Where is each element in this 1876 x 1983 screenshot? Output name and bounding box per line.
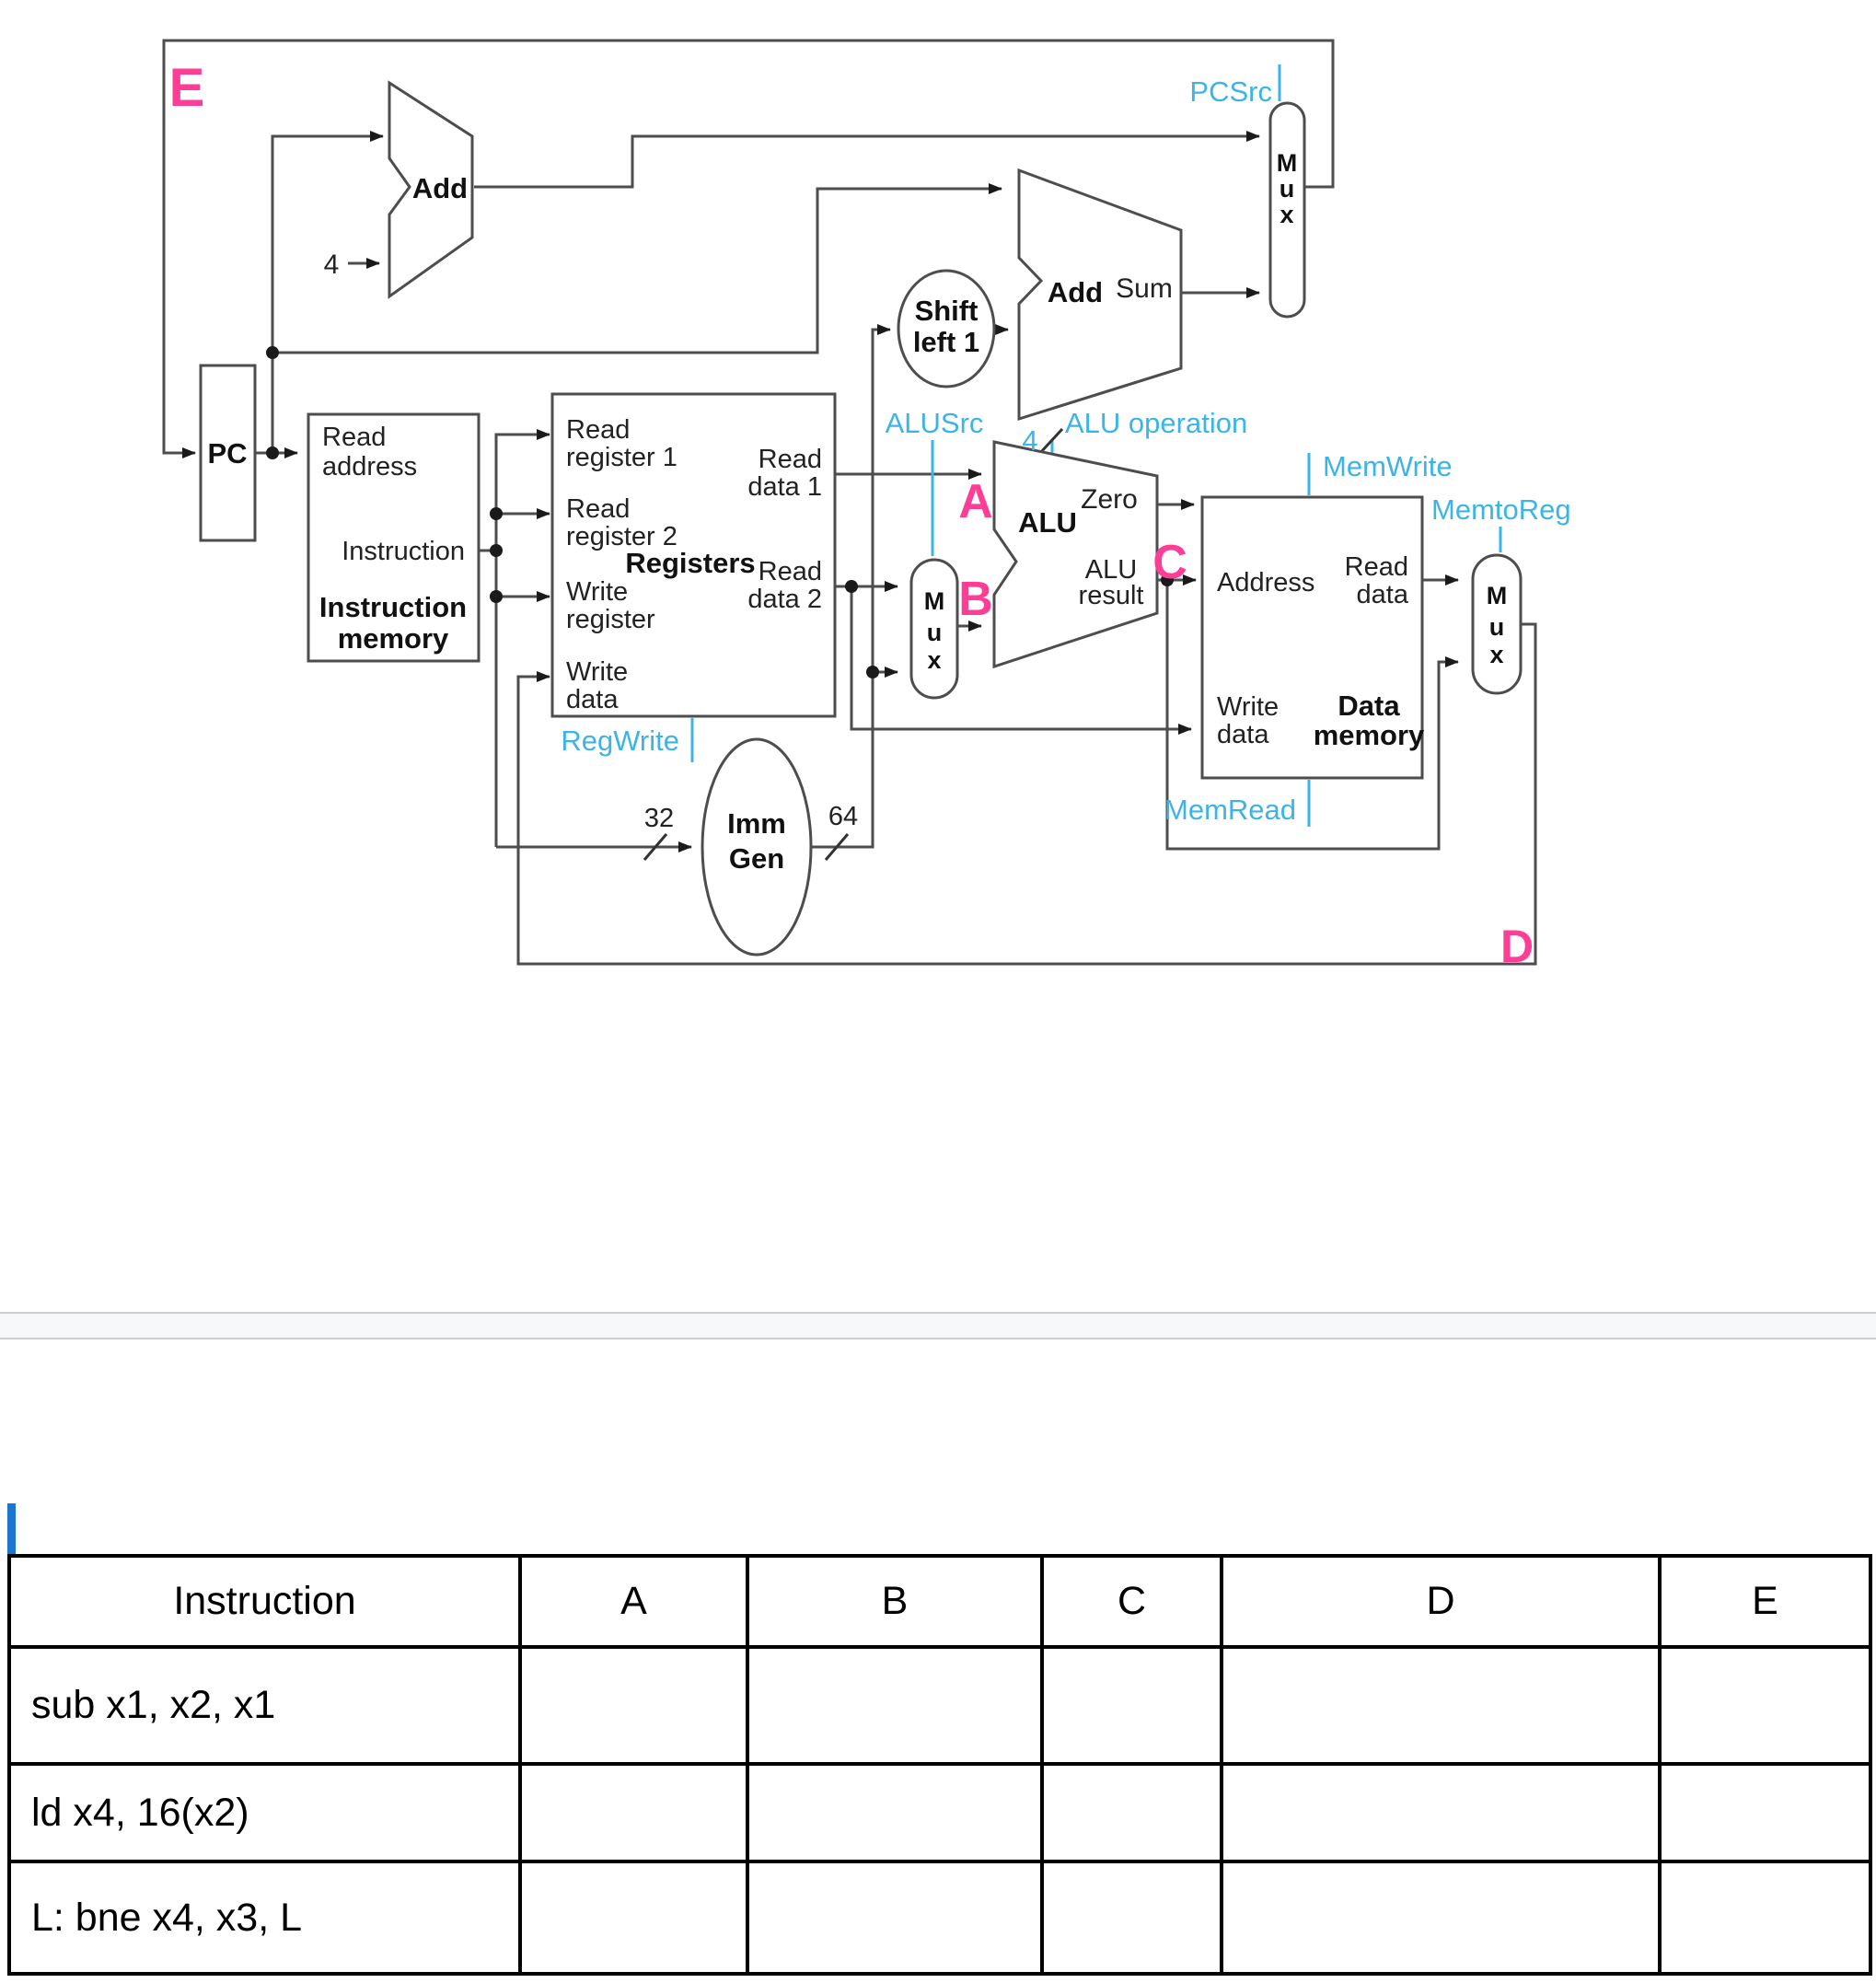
datapath-diagram: PC 4 Read address Instruction Instructio…	[0, 0, 1876, 1298]
regfile-readreg1-1: Read	[566, 415, 630, 445]
mux-pcsrc-x: x	[1280, 201, 1293, 228]
col-header-a: A	[520, 1556, 747, 1647]
mux-pcsrc-m: M	[1277, 149, 1298, 177]
junction-instr-rr2	[490, 507, 503, 520]
junction-pc-branch	[266, 346, 279, 359]
page: PC 4 Read address Instruction Instructio…	[0, 0, 1876, 1983]
junction-immgen-out	[866, 666, 879, 678]
table-header-row: Instruction A B C D E	[9, 1556, 1870, 1647]
imem-instruction-port: Instruction	[342, 537, 465, 566]
regfile-writereg-2: register	[566, 605, 655, 634]
imem-title-2: memory	[338, 622, 449, 655]
shift-label-1: Shift	[915, 295, 979, 327]
regfile-readdata2-1: Read	[759, 557, 822, 586]
point-label-e: E	[169, 58, 205, 118]
alu-block	[994, 442, 1157, 667]
answer-cell-c[interactable]	[1042, 1861, 1222, 1974]
answer-cell-b[interactable]	[747, 1647, 1042, 1764]
immgen-label-2: Gen	[729, 842, 784, 875]
wire-instr-to-readreg1	[496, 435, 550, 847]
table-row: L: bne x4, x3, L	[9, 1861, 1870, 1974]
dmem-address: Address	[1217, 568, 1314, 597]
answer-cell-b[interactable]	[747, 1764, 1042, 1861]
answer-cell-d[interactable]	[1222, 1647, 1660, 1764]
dmem-title-2: memory	[1314, 719, 1425, 751]
control-memtoreg-label: MemtoReg	[1431, 493, 1571, 526]
col-header-e: E	[1660, 1556, 1870, 1647]
dmem-readdata-2: data	[1357, 580, 1409, 609]
answer-table: Instruction A B C D E sub x1, x2, x1 ld …	[7, 1554, 1872, 1976]
point-label-c: C	[1152, 536, 1187, 589]
mux-memtoreg-x: x	[1489, 641, 1503, 668]
answer-cell-b[interactable]	[747, 1861, 1042, 1974]
col-header-c: C	[1042, 1556, 1222, 1647]
wire-pc-to-add2	[272, 189, 1002, 353]
regfile-title: Registers	[625, 547, 755, 579]
regfile-readdata2-2: data 2	[747, 585, 822, 614]
regfile-writereg-1: Write	[566, 577, 628, 607]
mux-alusrc-x: x	[927, 646, 941, 674]
adder-branch-label: Add	[1048, 276, 1103, 308]
regfile-writedata-1: Write	[566, 657, 628, 687]
wire-pc-to-add1	[272, 136, 383, 453]
immgen-label-1: Imm	[727, 807, 786, 840]
alu-result-2: result	[1079, 581, 1144, 610]
instruction-cell: sub x1, x2, x1	[9, 1647, 520, 1764]
control-memwrite-label: MemWrite	[1323, 450, 1453, 482]
pc-increment-4: 4	[324, 249, 340, 280]
col-header-instruction: Instruction	[9, 1556, 520, 1647]
immgen-width-32: 32	[644, 804, 674, 833]
mux-alusrc-m: M	[924, 587, 945, 615]
col-header-b: B	[747, 1556, 1042, 1647]
junction-readdata2	[845, 580, 858, 593]
imem-read-address-2: address	[322, 452, 417, 481]
text-cursor	[7, 1503, 16, 1554]
answer-cell-a[interactable]	[520, 1647, 747, 1764]
control-regwrite-label: RegWrite	[561, 725, 679, 757]
mux-memtoreg-m: M	[1487, 582, 1508, 609]
table-row: sub x1, x2, x1	[9, 1647, 1870, 1764]
imem-read-address-1: Read	[322, 423, 386, 452]
regfile-readreg2-1: Read	[566, 494, 630, 524]
mux-alusrc-u: u	[927, 619, 943, 646]
table-row: ld x4, 16(x2)	[9, 1764, 1870, 1861]
alu-zero: Zero	[1081, 484, 1138, 515]
point-label-a: A	[958, 475, 993, 528]
mux-memtoreg-u: u	[1489, 613, 1505, 641]
dmem-writedata-2: data	[1217, 720, 1269, 749]
pc-label: PC	[207, 437, 247, 470]
answer-cell-c[interactable]	[1042, 1647, 1222, 1764]
answer-cell-e[interactable]	[1660, 1861, 1870, 1974]
junction-instr-wr	[490, 590, 503, 603]
section-divider	[0, 1312, 1876, 1339]
instruction-cell: L: bne x4, x3, L	[9, 1861, 520, 1974]
adder-branch-sum: Sum	[1116, 273, 1173, 304]
answer-cell-c[interactable]	[1042, 1764, 1222, 1861]
point-label-d: D	[1500, 921, 1534, 972]
dmem-readdata-1: Read	[1345, 552, 1408, 582]
junction-pc-out	[266, 446, 279, 459]
mux-pcsrc-u: u	[1280, 175, 1295, 203]
control-aluop-label: ALU operation	[1065, 407, 1247, 439]
regfile-writedata-2: data	[566, 685, 619, 714]
regfile-readreg1-2: register 1	[566, 443, 677, 472]
point-label-b: B	[958, 573, 993, 626]
col-header-d: D	[1222, 1556, 1660, 1647]
control-alusrc-label: ALUSrc	[886, 407, 984, 439]
regfile-readdata1-2: data 1	[747, 472, 822, 502]
answer-cell-d[interactable]	[1222, 1861, 1660, 1974]
dmem-title-1: Data	[1338, 690, 1400, 722]
shift-label-2: left 1	[913, 326, 979, 358]
dmem-writedata-1: Write	[1217, 692, 1279, 722]
control-aluop-width: 4	[1022, 424, 1037, 457]
adder-pc4-label: Add	[412, 172, 468, 204]
control-memread-label: MemRead	[1164, 794, 1296, 826]
answer-cell-a[interactable]	[520, 1861, 747, 1974]
answer-cell-e[interactable]	[1660, 1647, 1870, 1764]
regfile-readdata1-1: Read	[759, 445, 822, 474]
junction-instr-out	[490, 544, 503, 557]
alu-label: ALU	[1018, 506, 1077, 539]
instruction-cell: ld x4, 16(x2)	[9, 1764, 520, 1861]
immgen-width-64: 64	[828, 802, 858, 831]
wire-add1-to-mux1	[474, 136, 1259, 187]
answer-cell-e[interactable]	[1660, 1764, 1870, 1861]
answer-cell-a[interactable]	[520, 1764, 747, 1861]
imem-title-1: Instruction	[319, 591, 467, 623]
control-pcsrc-label: PCSrc	[1189, 75, 1272, 108]
answer-cell-d[interactable]	[1222, 1764, 1660, 1861]
